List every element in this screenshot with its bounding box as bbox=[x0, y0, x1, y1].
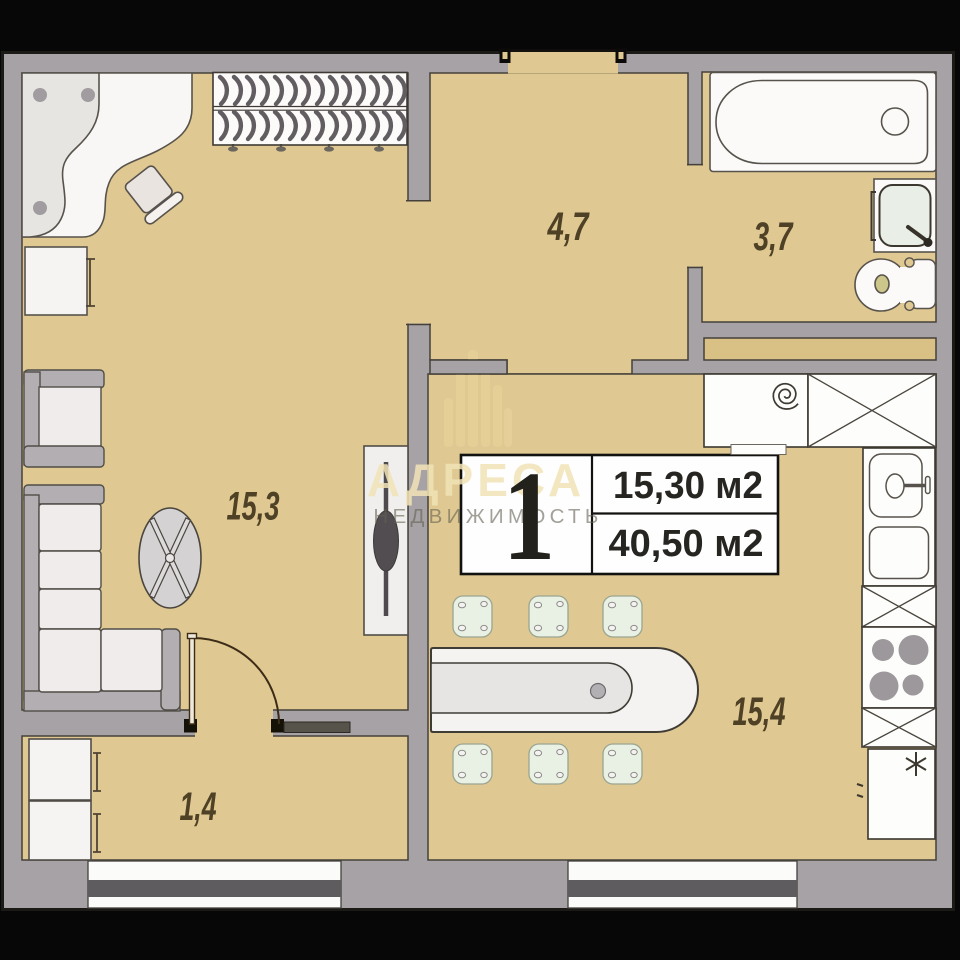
svg-text:15,4: 15,4 bbox=[733, 690, 786, 734]
svg-text:4,7: 4,7 bbox=[547, 205, 590, 249]
svg-text:15,30 м2: 15,30 м2 bbox=[613, 465, 763, 507]
svg-text:1,4: 1,4 bbox=[180, 785, 217, 829]
svg-text:40,50 м2: 40,50 м2 bbox=[609, 523, 764, 565]
svg-text:НЕДВИЖИМОСТЬ: НЕДВИЖИМОСТЬ bbox=[373, 505, 602, 528]
svg-text:3,7: 3,7 bbox=[754, 215, 794, 259]
svg-text:15,3: 15,3 bbox=[227, 485, 280, 529]
svg-text:1: 1 bbox=[503, 446, 555, 587]
